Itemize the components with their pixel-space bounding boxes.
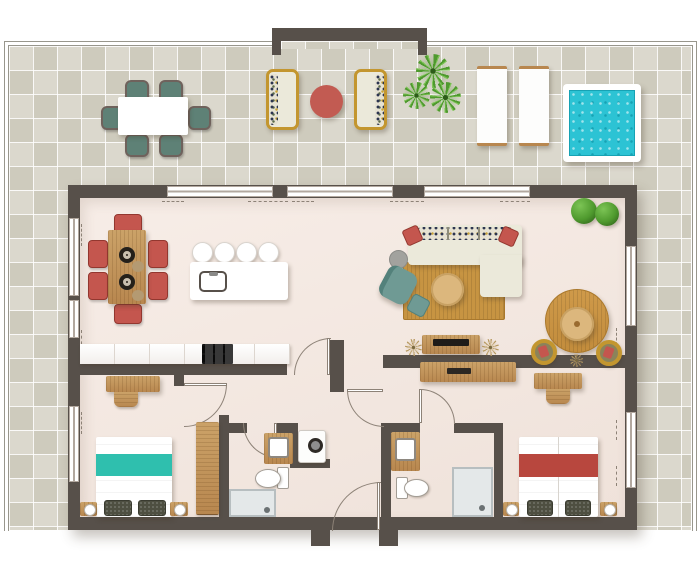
- wardrobe: [196, 422, 219, 515]
- cooktop: [202, 344, 233, 364]
- window-left: [69, 406, 79, 482]
- bed-pillow: [527, 500, 553, 516]
- terrace-chair: [188, 106, 211, 130]
- sliding-door-window: [424, 186, 530, 197]
- dried-plant: [570, 354, 583, 367]
- loveseat-cushions: [269, 74, 278, 125]
- curtain-mark: [248, 198, 288, 202]
- front-door-leaf: [377, 482, 380, 530]
- wall-entry-bath2: [381, 423, 391, 517]
- bed-pillow: [138, 500, 166, 516]
- terrace-bump-wall-top: [272, 28, 427, 41]
- toilet-bathroom1: [255, 469, 281, 488]
- tv: [433, 339, 469, 346]
- curtain-mark: [81, 412, 85, 434]
- sideboard-decor: [447, 368, 471, 374]
- hedge-bush: [595, 202, 619, 226]
- bar-stool: [192, 242, 213, 263]
- dining-chair: [114, 304, 142, 324]
- desk-bedroom2: [534, 373, 582, 389]
- floor-plan: [0, 0, 700, 562]
- desk-chair-bedroom1: [114, 392, 138, 407]
- nightstand-lamp: [84, 504, 96, 516]
- table-vase: [574, 321, 580, 327]
- entry-stub-right: [379, 530, 398, 546]
- bar-stool: [258, 242, 279, 263]
- window-right: [626, 412, 636, 488]
- window-right: [626, 246, 636, 326]
- terrace-bump-tiles: [281, 41, 418, 49]
- shower-head: [479, 505, 485, 511]
- hall-living-door-leaf: [347, 389, 383, 392]
- washer-door: [308, 438, 323, 453]
- outdoor-dining-table: [118, 97, 188, 135]
- cutting-board: [132, 290, 144, 301]
- bedroom1-door-leaf: [184, 383, 227, 386]
- terrace-chair: [159, 134, 183, 157]
- wall-post-bedroom1: [174, 372, 184, 386]
- terrace-chair: [125, 134, 149, 157]
- curtain-mark: [390, 198, 424, 202]
- bed-seam: [558, 437, 559, 517]
- hedge-bush: [571, 198, 597, 224]
- shower-bathroom1: [229, 489, 276, 517]
- bedspread-teal: [96, 454, 172, 476]
- curtain-mark: [162, 198, 184, 202]
- desk-bedroom1: [106, 376, 160, 392]
- sink-bathroom2: [395, 438, 416, 461]
- curtain-mark: [292, 198, 314, 202]
- loveseat-cushions: [375, 74, 384, 125]
- plunge-pool-water: [569, 90, 635, 156]
- curtain-mark: [500, 198, 530, 202]
- dining-chair: [148, 240, 168, 268]
- bar-stool: [214, 242, 235, 263]
- round-coffee-table: [431, 273, 464, 306]
- shower-head: [264, 507, 270, 513]
- desk-chair-bedroom2: [546, 389, 570, 404]
- palm-plant: [430, 82, 461, 113]
- toilet-bathroom2: [404, 479, 429, 497]
- terrace-bump-wall-left: [272, 28, 281, 55]
- palm-plant: [403, 82, 430, 109]
- kitchen-counter: [80, 344, 290, 364]
- bathroom2-door-leaf: [419, 389, 422, 423]
- dried-plant: [405, 339, 422, 356]
- bed-pillow: [565, 500, 591, 516]
- sliding-door-window: [287, 186, 393, 197]
- terrace-bump-wall-right: [418, 28, 427, 55]
- bed-pillow: [104, 500, 132, 516]
- dried-plant: [482, 339, 499, 356]
- wall-bath2-bedroom2: [494, 423, 503, 517]
- entry-stub-left: [311, 530, 330, 546]
- sink-faucet: [209, 272, 218, 276]
- plate: [119, 274, 135, 290]
- dining-chair: [88, 272, 108, 300]
- bedspread-red: [519, 454, 598, 477]
- bar-stool: [236, 242, 257, 263]
- plate: [119, 247, 135, 263]
- window-left: [69, 300, 79, 338]
- curtain-mark: [616, 420, 620, 440]
- window-left: [69, 218, 79, 296]
- round-red-side-table: [310, 85, 343, 118]
- nightstand-lamp: [604, 504, 616, 516]
- nightstand-lamp: [506, 504, 518, 516]
- nightstand-lamp: [174, 504, 186, 516]
- dining-chair: [148, 272, 168, 300]
- curtain-mark: [81, 224, 85, 246]
- sink-bathroom1: [268, 437, 289, 458]
- shower-bathroom2: [452, 467, 493, 517]
- wall-bedroom1-bath1: [219, 415, 229, 517]
- sun-lounger: [519, 66, 549, 146]
- dining-chair: [88, 240, 108, 268]
- sliding-door-window: [167, 186, 273, 197]
- curtain-mark: [616, 466, 620, 486]
- wall-stub-kitchen-living: [330, 340, 344, 392]
- kitchen-door-leaf: [327, 338, 330, 375]
- cutting-board: [132, 261, 144, 272]
- corner-sofa-return: [480, 255, 522, 297]
- sun-lounger: [477, 66, 507, 146]
